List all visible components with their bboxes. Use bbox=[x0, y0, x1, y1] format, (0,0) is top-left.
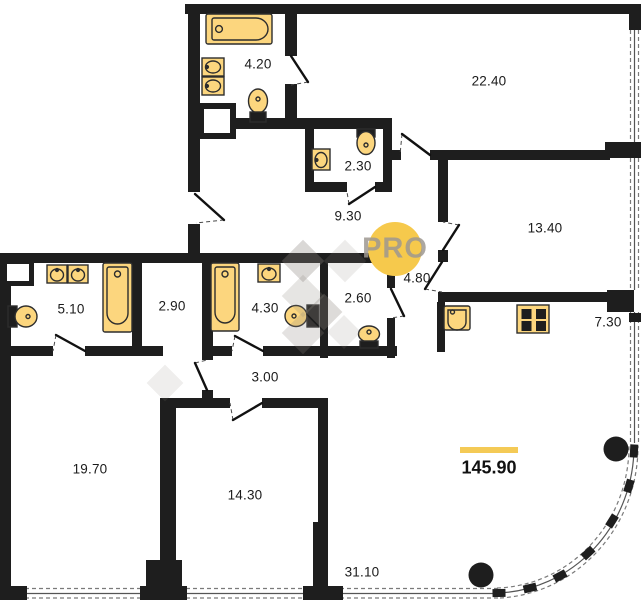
sink-icon bbox=[47, 265, 67, 283]
sink-icon bbox=[202, 58, 224, 76]
room-area-label: 13.40 bbox=[528, 221, 563, 236]
sink-icon bbox=[68, 265, 88, 283]
room-area-label: 7.30 bbox=[594, 315, 621, 330]
room-area-label: 2.60 bbox=[344, 291, 371, 306]
room-area-label: 3.00 bbox=[251, 370, 278, 385]
stove-icon bbox=[517, 305, 549, 333]
toilet-icon bbox=[249, 89, 268, 122]
room-area-label: 5.10 bbox=[57, 302, 84, 317]
room-area-label: 9.30 bbox=[334, 209, 361, 224]
toilet-icon bbox=[357, 129, 375, 155]
room-area-label: 4.20 bbox=[244, 57, 271, 72]
floor-plan: PRO 4.20 22.40 2.30 9.30 13.40 5.10 2.90… bbox=[0, 0, 641, 600]
sink-icon bbox=[258, 264, 280, 282]
room-area-label: 19.70 bbox=[73, 462, 108, 477]
room-area-label: 31.10 bbox=[345, 565, 380, 580]
room-area-label: 14.30 bbox=[228, 488, 263, 503]
total-area-underline bbox=[460, 447, 518, 453]
total-area-value: 145.90 bbox=[461, 458, 516, 479]
bathtub-icon bbox=[206, 14, 272, 44]
room-area-label: 4.30 bbox=[251, 301, 278, 316]
bathtub-icon bbox=[211, 263, 239, 331]
sink-icon bbox=[202, 77, 224, 95]
room-area-label: 2.30 bbox=[344, 159, 371, 174]
pro-watermark-label: PRO bbox=[362, 233, 428, 266]
kitchen-sink-icon bbox=[444, 306, 470, 330]
floor-plan-drawing bbox=[0, 0, 641, 600]
room-area-label: 4.80 bbox=[403, 271, 430, 286]
toilet-icon bbox=[8, 306, 37, 327]
room-area-label: 2.90 bbox=[158, 299, 185, 314]
sink-icon bbox=[312, 149, 330, 170]
bathtub-icon bbox=[103, 263, 132, 332]
room-area-label: 22.40 bbox=[472, 74, 507, 89]
toilet-icon bbox=[359, 326, 380, 348]
